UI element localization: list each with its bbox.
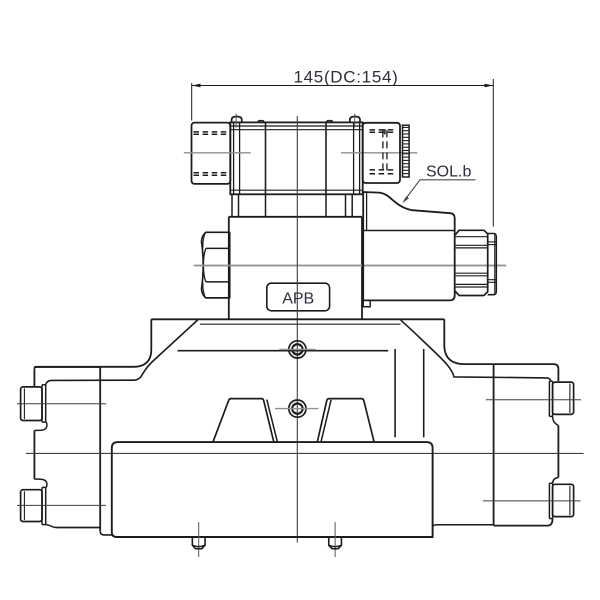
svg-text:SOL.b: SOL.b xyxy=(426,164,471,181)
svg-text:145(DC:154): 145(DC:154) xyxy=(293,68,398,87)
svg-text:APB: APB xyxy=(282,290,314,307)
